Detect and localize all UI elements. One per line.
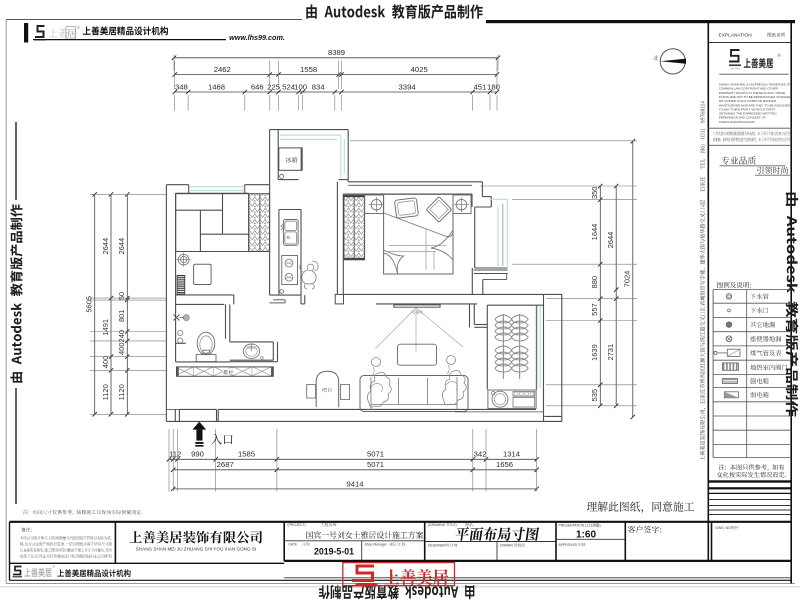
- svg-text:4025: 4025: [411, 65, 428, 74]
- svg-text:APPROVED: APPROVED: [559, 543, 578, 547]
- svg-text:342: 342: [474, 450, 487, 459]
- svg-text:801: 801: [117, 310, 126, 323]
- svg-text:400: 400: [117, 342, 126, 355]
- svg-text:1639: 1639: [590, 344, 599, 361]
- svg-text:1314: 1314: [503, 450, 521, 459]
- svg-text:5605: 5605: [85, 296, 94, 313]
- svg-text:2019-5-01: 2019-5-01: [314, 547, 354, 557]
- svg-text:451: 451: [473, 82, 486, 91]
- svg-text:2687: 2687: [217, 460, 234, 469]
- svg-text:1491: 1491: [101, 319, 110, 336]
- svg-text:DRAWN: DRAWN: [500, 543, 513, 547]
- svg-text:1468: 1468: [208, 82, 225, 91]
- svg-text:990: 990: [191, 450, 204, 459]
- svg-text:2731: 2731: [606, 344, 615, 361]
- svg-text:DESIGNER: DESIGNER: [428, 543, 446, 547]
- svg-text:DATE: DATE: [289, 542, 299, 546]
- svg-text:1585: 1585: [238, 450, 255, 459]
- svg-text:SHANGSHANMEIJU: SHANGSHANMEIJU: [349, 584, 375, 588]
- svg-text:(PROJECT): (PROJECT): [288, 523, 306, 527]
- svg-text:646: 646: [251, 82, 264, 91]
- svg-text:PRESENTATION (1:比例图): PRESENTATION (1:比例图): [559, 523, 601, 528]
- svg-text:400: 400: [101, 356, 110, 369]
- svg-text:(DRAWING TITLE): (DRAWING TITLE): [428, 523, 457, 527]
- svg-text:®: ®: [77, 26, 80, 30]
- svg-text:180: 180: [487, 82, 500, 91]
- svg-text:SHVNH: SHVNH: [730, 67, 739, 71]
- svg-text:1656: 1656: [496, 460, 513, 469]
- svg-text:2644: 2644: [117, 238, 126, 255]
- svg-text:Shop Manager: Shop Manager: [365, 542, 388, 546]
- svg-text:112: 112: [169, 450, 181, 459]
- svg-text:50: 50: [117, 292, 126, 300]
- svg-text:350: 350: [590, 187, 599, 200]
- svg-text:2644: 2644: [101, 238, 110, 255]
- svg-text:1558: 1558: [300, 65, 317, 74]
- svg-text:535: 535: [590, 389, 599, 402]
- svg-text:5071: 5071: [367, 450, 384, 459]
- svg-text:www.lhs99.com.: www.lhs99.com.: [229, 33, 285, 42]
- svg-text:880: 880: [590, 276, 599, 289]
- svg-text:100: 100: [294, 82, 307, 91]
- svg-text:XINRULONGZHUANGSHI: XINRULONGZHUANGSHI: [719, 120, 755, 124]
- svg-text:8389: 8389: [328, 48, 345, 57]
- svg-text:2644: 2644: [606, 232, 615, 249]
- svg-text:557: 557: [590, 303, 599, 316]
- svg-text:5071: 5071: [367, 460, 384, 469]
- svg-text:®: ®: [53, 565, 56, 569]
- svg-text:3394: 3394: [399, 82, 417, 91]
- svg-text:DWG. NO: DWG. NO: [716, 526, 732, 530]
- svg-text:EXPLANATION: EXPLANATION: [719, 33, 753, 39]
- svg-text:2462: 2462: [214, 65, 231, 74]
- svg-text:348: 348: [175, 82, 188, 91]
- svg-text:240: 240: [117, 330, 126, 343]
- svg-text:1644: 1644: [590, 224, 599, 241]
- svg-text:7024: 7024: [623, 271, 632, 288]
- svg-text:9414: 9414: [346, 479, 364, 488]
- svg-text:225: 225: [267, 82, 280, 91]
- svg-text:1120: 1120: [117, 384, 126, 400]
- svg-text:834: 834: [312, 82, 326, 91]
- svg-text:1120: 1120: [101, 384, 110, 400]
- svg-text:SHANG SHAN MEI JU ZHUANG: SHANG SHAN MEI JU ZHUANG SHI YOU XIAN GO…: [136, 546, 256, 551]
